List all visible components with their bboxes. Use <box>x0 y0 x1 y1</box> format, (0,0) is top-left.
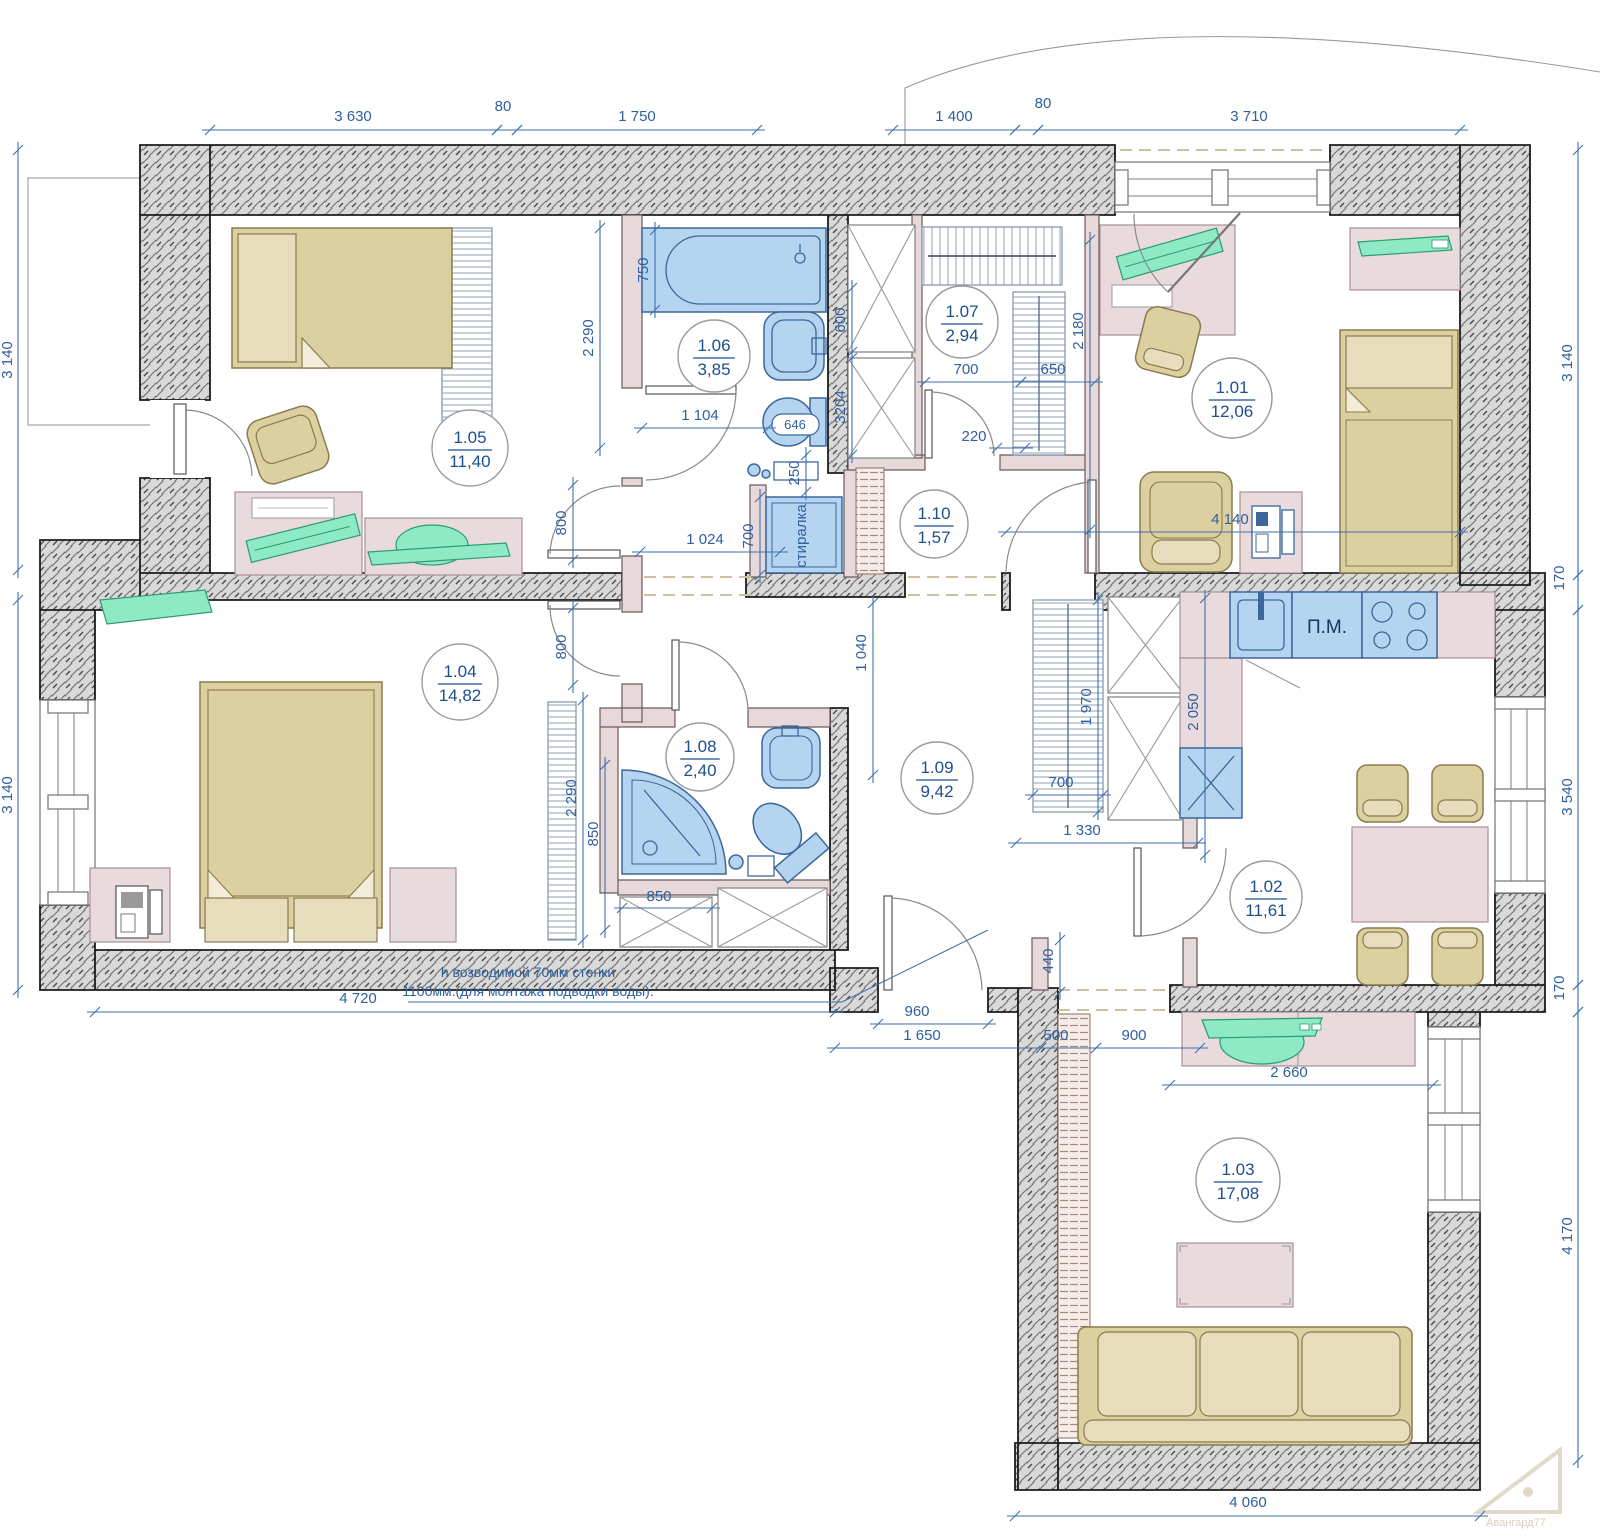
dimension-text: 1 040 <box>853 634 870 672</box>
dimension: 1 400 <box>885 108 1023 135</box>
dimension: 80 <box>1007 95 1051 135</box>
door-leaf-1-04 <box>548 601 620 609</box>
room-area: 17,08 <box>1217 1184 1260 1203</box>
plan-label: 1100мм.(для монтажа подводки воды). <box>402 983 653 999</box>
dimension: 3 630 <box>202 108 505 135</box>
dimension-text: 80 <box>1035 95 1052 112</box>
dimension-text: 850 <box>646 888 671 905</box>
furniture-1-02 <box>1180 592 1495 985</box>
dining-table <box>1352 827 1488 922</box>
counter-right <box>1437 592 1495 658</box>
dimension: 3 140 <box>1559 142 1583 583</box>
window-1-04 <box>40 700 95 905</box>
door-leaf-1-07 <box>925 390 932 458</box>
coffee-table <box>1177 1243 1293 1307</box>
dimension: 3 710 <box>1030 108 1468 135</box>
room-area: 11,61 <box>1245 901 1286 920</box>
dimension: 960 <box>870 1003 996 1029</box>
room-label-1.10: 1.101,57 <box>900 490 968 558</box>
room-number: 1.09 <box>920 758 953 777</box>
furniture-1-03 <box>1078 1012 1415 1445</box>
fixtures-1-06 <box>642 228 842 573</box>
dimension-text: 170 <box>1551 975 1568 1000</box>
dimension-text: 4 170 <box>1559 1217 1576 1255</box>
dimension-text: 1 750 <box>618 108 656 125</box>
room-area: 3,85 <box>697 360 730 379</box>
dimension-text: 750 <box>635 257 652 282</box>
room-label-1.01: 1.0112,06 <box>1192 358 1272 438</box>
counter-fold-line <box>1246 660 1300 688</box>
room-number: 1.05 <box>453 428 486 447</box>
dimension-text: 80 <box>495 98 512 115</box>
low-wall-plumbing-icons <box>748 462 818 480</box>
dimension: 250 <box>786 447 811 500</box>
dimension: 1 040 <box>853 595 878 783</box>
dimension-text: 4 720 <box>339 990 377 1007</box>
fridge-icon <box>1180 748 1242 818</box>
dimension-text: 1 104 <box>681 407 719 424</box>
kitchen-door-leaf <box>1134 848 1141 936</box>
room-number: 1.06 <box>697 336 730 355</box>
keyboard-icon <box>1112 285 1172 307</box>
dimension-text: 850 <box>585 821 602 846</box>
room-number: 1.07 <box>945 302 978 321</box>
bed-1-01 <box>1340 330 1458 573</box>
nightstand-right <box>390 868 456 942</box>
bathtub-icon <box>642 228 826 312</box>
floor-plan-drawing: 3 630801 7501 400803 7103 1403 1403 1401… <box>0 0 1600 1537</box>
furniture-1-04 <box>90 590 456 942</box>
chair-1-05 <box>244 402 333 487</box>
dimension-text: 600 <box>832 307 849 332</box>
dimension-text: 500 <box>1043 1027 1068 1044</box>
bed-1-04 <box>200 682 382 942</box>
dimension-text: 3 140 <box>1559 344 1576 382</box>
dimension-text: 700 <box>1048 774 1073 791</box>
window-living <box>1428 1027 1480 1212</box>
dimension-text: 3 630 <box>334 108 372 125</box>
plumbing-icons <box>729 855 774 876</box>
dimension-text: 4 060 <box>1229 1494 1267 1511</box>
stove-icon <box>1362 592 1437 658</box>
door-leaf-1-08 <box>672 640 679 710</box>
floor-plan-page: 3 630801 7501 400803 7103 1403 1403 1401… <box>0 0 1600 1537</box>
dimension-text: 700 <box>740 523 757 548</box>
dimension-text: 220 <box>961 428 986 445</box>
dimension-text: 3204 <box>832 390 849 423</box>
room-area: 9,42 <box>920 782 953 801</box>
dimension-text: 1 330 <box>1063 822 1101 839</box>
dimension-text: 440 <box>1040 948 1057 973</box>
kitchen-sink-icon <box>1230 592 1292 658</box>
shower-sink-icon <box>762 726 820 788</box>
dimension: 3 140 <box>0 142 23 578</box>
shower-toilet-icon <box>739 790 829 883</box>
room-area: 2,40 <box>683 761 716 780</box>
entrance-door-leaf <box>884 896 892 990</box>
dimension-text: 960 <box>904 1003 929 1020</box>
dimension: 2 660 <box>1162 1064 1441 1090</box>
dimension-text: 800 <box>553 510 570 535</box>
dimension: 1 750 <box>509 108 765 135</box>
dimension: 800 <box>553 600 578 693</box>
phone-icon <box>116 886 162 938</box>
room-label-1.02: 1.0211,61 <box>1230 861 1302 933</box>
door-leaf-1-01 <box>1088 480 1096 573</box>
dimension-text: 3 140 <box>0 341 16 379</box>
room-label-1.05: 1.0511,40 <box>432 410 508 486</box>
dimension: 4 060 <box>1007 1494 1488 1521</box>
room-number: 1.03 <box>1221 1160 1254 1179</box>
plan-label: стиралка <box>793 504 810 568</box>
room-label-1.09: 1.099,42 <box>901 742 973 814</box>
top-right-balcony-arc <box>905 37 1600 145</box>
bath-sink-icon <box>764 312 826 380</box>
dimension: 1 104 <box>634 407 776 433</box>
window-top-1-01 <box>1115 162 1330 212</box>
room-area: 14,82 <box>439 686 482 705</box>
dimension-text: 900 <box>1121 1027 1146 1044</box>
room-number: 1.08 <box>683 737 716 756</box>
wardrobe-1-04 <box>548 702 576 940</box>
closet-1-07-hanger <box>922 227 1062 285</box>
dimension-text: 3 540 <box>1559 778 1576 816</box>
dimension-text: 1 024 <box>686 531 724 548</box>
dimension-text: 3 710 <box>1230 108 1268 125</box>
sofa <box>1078 1327 1412 1445</box>
room-area: 1,57 <box>917 528 950 547</box>
dimension-text: 4 140 <box>1211 511 1249 528</box>
dimension-text: 1 970 <box>1078 688 1095 726</box>
dimension: 3 140 <box>0 592 23 998</box>
room-label-1.07: 1.072,94 <box>926 286 998 358</box>
plan-label: П.М. <box>1307 617 1347 638</box>
radiator-1-10 <box>856 468 884 574</box>
console-buttons <box>1432 240 1448 248</box>
pillow-1-05 <box>238 234 296 362</box>
room-area: 11,40 <box>449 452 490 471</box>
dimension-text: 700 <box>953 361 978 378</box>
plan-label: h возводимой 70мм стенки <box>441 964 615 980</box>
room-number: 1.02 <box>1249 877 1282 896</box>
room-number: 1.04 <box>443 662 476 681</box>
dimension-text: 1 400 <box>935 108 973 125</box>
dimension: 1 330 <box>1008 822 1206 848</box>
plan-label: Авангард77 <box>1486 1517 1546 1529</box>
dimension-text: 2 290 <box>563 779 580 817</box>
dimension: 1 650 <box>827 1027 1049 1053</box>
dimension: 2 290 <box>580 220 605 456</box>
window-kitchen <box>1495 697 1545 893</box>
room-area: 2,94 <box>945 326 978 345</box>
plan-label: 646 <box>784 417 806 432</box>
dimension: 3 540 <box>1559 602 1583 993</box>
watermark-logo <box>1478 1450 1560 1512</box>
room-label-1.03: 1.0317,08 <box>1196 1138 1280 1222</box>
dimension-text: 2 180 <box>1070 312 1087 350</box>
dimension-text: 250 <box>786 460 803 485</box>
dimension-text: 3 140 <box>0 776 16 814</box>
dimension-text: 2 290 <box>580 319 597 357</box>
room-area: 12,06 <box>1211 402 1254 421</box>
room-label-1.06: 1.063,85 <box>678 320 750 392</box>
balcony-door-1-05 <box>150 400 252 478</box>
room-label-1.08: 1.082,40 <box>666 723 734 791</box>
dimension: 4 170 <box>1559 1004 1583 1468</box>
dimension-text: 650 <box>1040 361 1065 378</box>
room-number: 1.01 <box>1215 378 1248 397</box>
room-number: 1.10 <box>917 504 950 523</box>
dimension: 700 <box>917 361 1029 387</box>
dimension-text: 1 650 <box>903 1027 941 1044</box>
dimension-text: 2 050 <box>1185 693 1202 731</box>
dimension-text: 2 660 <box>1270 1064 1308 1081</box>
dimension-text: 170 <box>1551 565 1568 590</box>
door-leaf-1-05 <box>548 550 620 558</box>
room-label-1.04: 1.0414,82 <box>422 644 498 720</box>
dimension-text: 800 <box>553 634 570 659</box>
